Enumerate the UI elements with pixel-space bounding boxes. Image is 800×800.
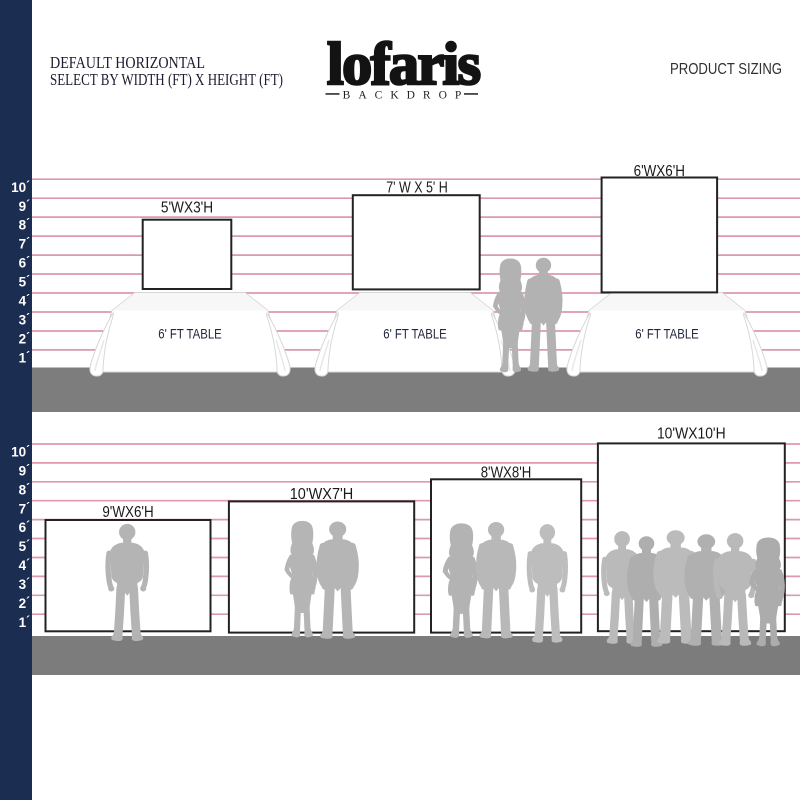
svg-text:SELECT BY WIDTH (FT) X HEIGHT: SELECT BY WIDTH (FT) X HEIGHT (FT) [50,70,283,89]
svg-text:6' FT TABLE: 6' FT TABLE [158,326,222,342]
svg-text:PRODUCT SIZING: PRODUCT SIZING [670,61,782,78]
svg-text:9'WX6'H: 9'WX6'H [102,504,153,521]
svg-text:6' FT TABLE: 6' FT TABLE [635,326,699,342]
svg-text:10'WX7'H: 10'WX7'H [290,486,354,503]
svg-text:7' W X 5' H: 7' W X 5' H [386,180,448,197]
svg-text:5'WX3'H: 5'WX3'H [161,200,213,217]
svg-text:BACKDROP: BACKDROP [343,90,470,102]
svg-text:10'WX10'H: 10'WX10'H [657,426,726,443]
svg-text:lofaris: lofaris [327,31,480,97]
svg-text:6' FT TABLE: 6' FT TABLE [383,326,447,342]
